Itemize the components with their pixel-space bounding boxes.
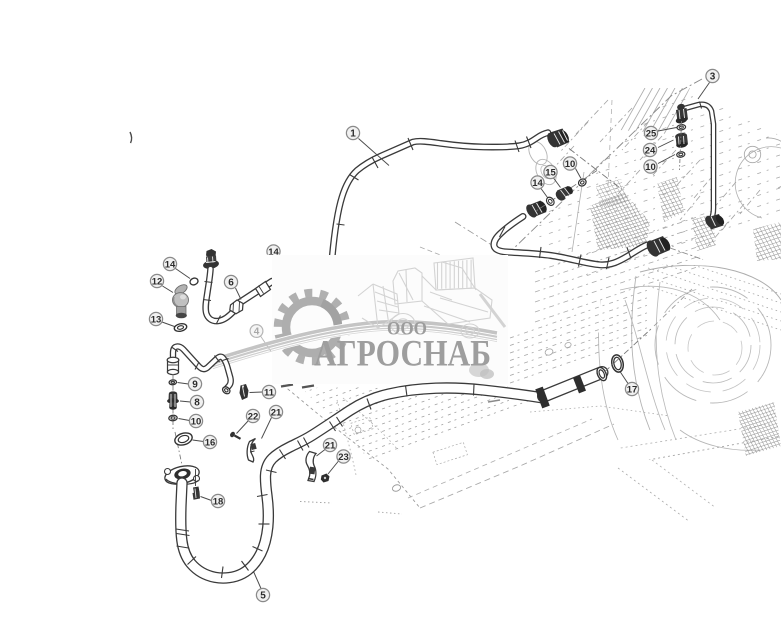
svg-text:10: 10 <box>645 162 656 173</box>
svg-text:8: 8 <box>194 398 200 409</box>
svg-text:18: 18 <box>213 497 224 508</box>
svg-text:13: 13 <box>151 315 162 326</box>
svg-text:15: 15 <box>545 168 556 179</box>
svg-text:25: 25 <box>646 129 657 140</box>
svg-text:10: 10 <box>565 159 576 170</box>
svg-text:14: 14 <box>532 178 543 189</box>
svg-text:22: 22 <box>248 412 259 423</box>
svg-text:6: 6 <box>228 278 234 289</box>
svg-text:9: 9 <box>192 380 198 391</box>
svg-text:23: 23 <box>338 452 349 463</box>
svg-text:24: 24 <box>645 146 656 157</box>
svg-text:12: 12 <box>152 277 163 288</box>
svg-text:21: 21 <box>271 408 282 419</box>
svg-text:АГРОСНАБ: АГРОСНАБ <box>314 334 491 375</box>
svg-text:3: 3 <box>710 72 716 83</box>
svg-text:11: 11 <box>264 388 275 399</box>
svg-text:21: 21 <box>325 441 336 452</box>
svg-text:4: 4 <box>254 326 260 337</box>
svg-text:14: 14 <box>165 260 176 271</box>
svg-text:16: 16 <box>205 438 216 449</box>
svg-text:10: 10 <box>191 417 202 428</box>
svg-text:5: 5 <box>260 591 266 602</box>
svg-text:1: 1 <box>350 129 356 140</box>
svg-text:17: 17 <box>627 385 638 396</box>
